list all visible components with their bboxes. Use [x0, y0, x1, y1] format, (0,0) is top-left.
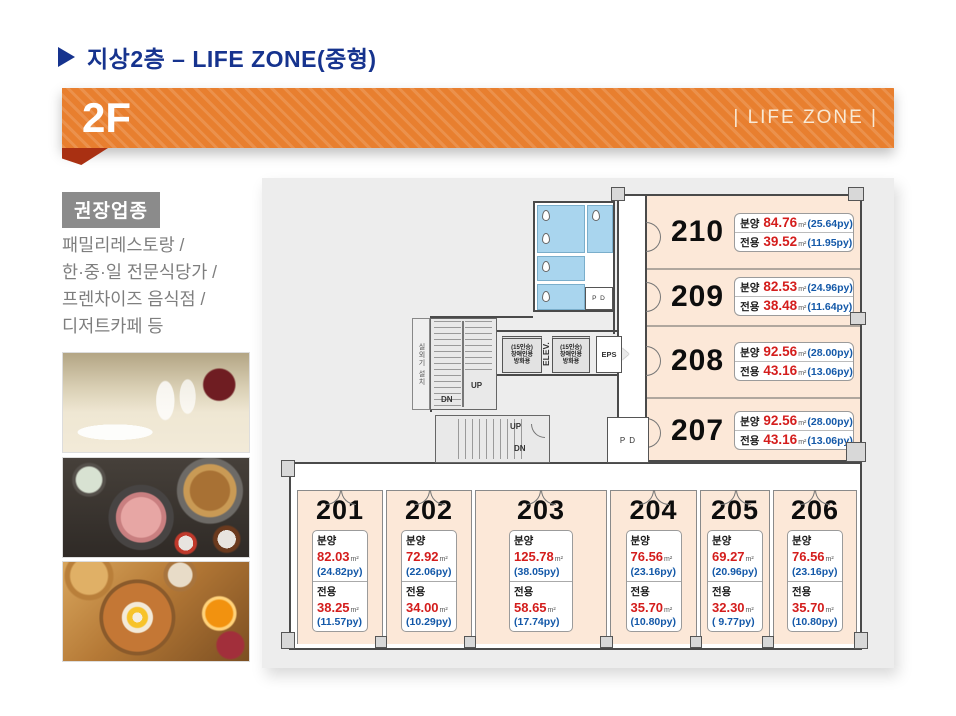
pd-shaft: P D: [585, 287, 613, 310]
dn-label: DN: [441, 395, 453, 404]
bunyang-value: 82.03: [317, 549, 350, 564]
bunyang-py: (23.16py): [631, 566, 677, 578]
bunyang-py: (22.06py): [406, 566, 452, 578]
sqm-unit: m²: [440, 556, 448, 563]
jeonyong-value: 34.00: [406, 600, 439, 615]
sqm-unit: m²: [746, 556, 754, 563]
photo-restaurant-table-setting: [62, 352, 250, 453]
bunyang-label: 분양: [740, 280, 759, 295]
door-icon: [721, 490, 751, 505]
pillar: [846, 442, 866, 462]
jeonyong-label: 전용: [712, 584, 758, 599]
eps-arrow-icon: [622, 348, 629, 360]
sqm-unit: m²: [798, 286, 806, 293]
jeonyong-value: 43.16: [763, 363, 797, 378]
bunyang-label: 분양: [406, 533, 452, 548]
bunyang-label: 분양: [740, 345, 759, 360]
pillar: [611, 187, 625, 201]
toilet-icon: [542, 233, 550, 244]
unit-area-card: 분양 69.27m² (20.96py) 전용 32.30m² ( 9.77py…: [707, 530, 763, 632]
pillar: [464, 636, 476, 648]
sqm-unit: m²: [826, 607, 834, 614]
page-title: 지상2층 – LIFE ZONE(중형): [87, 40, 377, 74]
bunyang-value: 76.56: [792, 549, 825, 564]
sqm-unit: m²: [440, 607, 448, 614]
elevator-accessible: 장애인용: [560, 352, 582, 359]
sqm-unit: m²: [798, 222, 806, 229]
jeonyong-label: 전용: [740, 364, 759, 379]
elevator-fire: 방화용: [514, 359, 531, 366]
jeonyong-value: 38.48: [763, 298, 797, 313]
unit-208: 208 분양92.56m²(28.00py) 전용43.16m²(13.06py…: [647, 325, 860, 397]
jeonyong-value: 38.25: [317, 600, 350, 615]
jeonyong-py: (17.74py): [514, 616, 568, 628]
sqm-unit: m²: [746, 607, 754, 614]
right-wing: 210 분양84.76m²(25.64py) 전용39.52m²(11.95py…: [617, 194, 862, 462]
unit-number: 208: [671, 344, 724, 378]
bunyang-value: 92.56: [763, 344, 797, 359]
recommend-item: 패밀리레스토랑 /: [62, 232, 217, 259]
restroom: [587, 205, 613, 253]
unit-area-card: 분양92.56m²(28.00py) 전용43.16m²(13.06py): [734, 342, 854, 381]
unit-206: 206 분양 76.56m² (23.16py) 전용 35.70m² (10.…: [773, 490, 857, 644]
toilet-icon: [592, 210, 600, 221]
bunyang-value: 92.56: [763, 413, 797, 428]
dn-label: DN: [514, 444, 526, 453]
restroom-block: P D: [533, 201, 615, 312]
elevator-accessible: 장애인용: [511, 352, 533, 359]
recommend-title-badge: 권장업종: [62, 192, 160, 228]
sqm-unit: m²: [548, 607, 556, 614]
recommend-item: 디저트카페 등: [62, 313, 217, 340]
wall: [497, 374, 617, 376]
jeonyong-py: (11.64py): [807, 301, 852, 313]
jeonyong-py: (10.80py): [792, 616, 838, 628]
sqm-unit: m²: [798, 439, 806, 446]
slide: 지상2층 – LIFE ZONE(중형) 2F | LIFE ZONE | 권장…: [0, 0, 956, 716]
page-title-row: 지상2층 – LIFE ZONE(중형): [58, 40, 377, 74]
elevator-fire: 방화용: [563, 359, 580, 366]
bunyang-py: (23.16py): [792, 566, 838, 578]
photo-korean-course-meal: [62, 457, 250, 558]
pillar: [690, 636, 702, 648]
jeonyong-label: 전용: [792, 584, 838, 599]
bunyang-py: (25.64py): [807, 218, 853, 230]
bunyang-label: 분양: [740, 414, 759, 429]
pillar: [854, 632, 868, 649]
jeonyong-value: 35.70: [631, 600, 664, 615]
unit-number: 207: [671, 414, 724, 448]
jeonyong-py: (11.95py): [807, 237, 852, 249]
bunyang-py: (24.96py): [807, 282, 853, 294]
unit-204: 204 분양 76.56m² (23.16py) 전용 35.70m² (10.…: [610, 490, 697, 644]
unit-number: 210: [671, 215, 724, 249]
jeonyong-label: 전용: [514, 584, 568, 599]
jeonyong-py: (10.29py): [406, 616, 452, 628]
pillar: [281, 632, 295, 649]
floor-label: 2F: [62, 97, 131, 139]
jeonyong-py: (13.06py): [807, 366, 853, 378]
staircase-lower: [435, 415, 550, 463]
unit-area-card: 분양 125.78m² (38.05py) 전용 58.65m² (17.74p…: [509, 530, 573, 632]
zone-label: | LIFE ZONE |: [733, 107, 894, 129]
elevator-capacity: (15인승): [560, 345, 582, 352]
wall: [497, 330, 617, 332]
bunyang-value: 69.27: [712, 549, 745, 564]
sqm-unit: m²: [826, 556, 834, 563]
bunyang-py: (38.05py): [514, 566, 568, 578]
elevator: (15인승) 장애인용 방화용: [552, 336, 590, 373]
sqm-unit: m²: [351, 556, 359, 563]
sqm-unit: m²: [798, 241, 806, 248]
bottom-wing: 201 분양 82.03m² (24.82py) 전용 38.25m² (11.…: [289, 462, 862, 650]
unit-area-card: 분양 72.92m² (22.06py) 전용 34.00m² (10.29py…: [401, 530, 457, 632]
bunyang-value: 72.92: [406, 549, 439, 564]
jeonyong-label: 전용: [406, 584, 452, 599]
unit-area-card: 분양 76.56m² (23.16py) 전용 35.70m² (10.80py…: [787, 530, 843, 632]
door-icon: [415, 490, 445, 505]
bunyang-value: 76.56: [631, 549, 664, 564]
bunyang-label: 분양: [631, 533, 677, 548]
unit-area-card: 분양92.56m²(28.00py) 전용43.16m²(13.06py): [734, 411, 854, 450]
bunyang-py: (20.96py): [712, 566, 758, 578]
photo-breakfast-plate: [62, 561, 250, 662]
recommend-item: 한·중·일 전문식당가 /: [62, 259, 217, 286]
floor-plan: 210 분양84.76m²(25.64py) 전용39.52m²(11.95py…: [262, 178, 894, 668]
play-triangle-icon: [58, 47, 75, 67]
bunyang-py: (28.00py): [807, 347, 853, 359]
sqm-unit: m²: [798, 351, 806, 358]
jeonyong-label: 전용: [317, 584, 363, 599]
up-label: UP: [510, 422, 521, 431]
unit-number: 209: [671, 280, 724, 314]
stair-treads: [465, 321, 492, 373]
floor-banner: 2F | LIFE ZONE |: [62, 88, 894, 148]
jeonyong-value: 35.70: [792, 600, 825, 615]
elevator: (15인승) 장애인용 방화용: [502, 336, 542, 373]
bunyang-label: 분양: [740, 216, 759, 231]
elevator-capacity: (15인승): [511, 345, 533, 352]
pillar: [281, 460, 295, 477]
unit-203: 203 분양 125.78m² (38.05py) 전용 58.65m² (17…: [475, 490, 607, 644]
bunyang-label: 분양: [317, 533, 363, 548]
door-icon: [326, 490, 356, 505]
jeonyong-label: 전용: [740, 299, 759, 314]
unit-area-card: 분양 82.03m² (24.82py) 전용 38.25m² (11.57py…: [312, 530, 368, 632]
jeonyong-label: 전용: [740, 433, 759, 448]
unit-area-card: 분양 76.56m² (23.16py) 전용 35.70m² (10.80py…: [626, 530, 682, 632]
jeonyong-value: 32.30: [712, 600, 745, 615]
outdoor-unit-area: 실외기 설치: [412, 318, 430, 410]
bunyang-value: 84.76: [763, 215, 797, 230]
sqm-unit: m²: [798, 370, 806, 377]
pillar: [850, 312, 866, 325]
jeonyong-py: (10.80py): [631, 616, 677, 628]
pillar: [375, 636, 387, 648]
unit-201: 201 분양 82.03m² (24.82py) 전용 38.25m² (11.…: [297, 490, 383, 644]
door-icon: [800, 490, 830, 505]
jeonyong-value: 43.16: [763, 432, 797, 447]
bunyang-value: 125.78: [514, 549, 554, 564]
right-wing-units: 210 분양84.76m²(25.64py) 전용39.52m²(11.95py…: [645, 196, 860, 460]
stair-rail: [462, 321, 464, 407]
bunyang-py: (24.82py): [317, 566, 363, 578]
bunyang-label: 분양: [792, 533, 838, 548]
recommend-list: 패밀리레스토랑 / 한·중·일 전문식당가 / 프렌차이즈 음식점 / 디저트카…: [62, 232, 217, 341]
unit-205: 205 분양 69.27m² (20.96py) 전용 32.30m² ( 9.…: [700, 490, 770, 644]
jeonyong-label: 전용: [740, 235, 759, 250]
elevator-label: ELEV.: [541, 335, 552, 373]
unit-202: 202 분양 72.92m² (22.06py) 전용 34.00m² (10.…: [386, 490, 472, 644]
unit-210: 210 분양84.76m²(25.64py) 전용39.52m²(11.95py…: [647, 196, 860, 268]
pillar: [848, 187, 864, 201]
door-icon: [526, 490, 556, 505]
recommend-item: 프렌차이즈 음식점 /: [62, 286, 217, 313]
sqm-unit: m²: [664, 556, 672, 563]
toilet-icon: [542, 291, 550, 302]
jeonyong-value: 39.52: [763, 234, 797, 249]
unit-207: 207 분양92.56m²(28.00py) 전용43.16m²(13.06py…: [647, 397, 860, 464]
up-label: UP: [471, 381, 482, 390]
jeonyong-py: ( 9.77py): [712, 616, 758, 628]
jeonyong-label: 전용: [631, 584, 677, 599]
bunyang-py: (28.00py): [807, 416, 853, 428]
bunyang-label: 분양: [712, 533, 758, 548]
unit-area-card: 분양84.76m²(25.64py) 전용39.52m²(11.95py): [734, 213, 854, 252]
sqm-unit: m²: [555, 556, 563, 563]
sqm-unit: m²: [664, 607, 672, 614]
door-icon: [639, 490, 669, 505]
door-arc-icon: [531, 424, 545, 438]
toilet-icon: [542, 210, 550, 221]
sqm-unit: m²: [351, 607, 359, 614]
pillar: [600, 636, 613, 648]
unit-area-card: 분양82.53m²(24.96py) 전용38.48m²(11.64py): [734, 277, 854, 316]
bunyang-value: 82.53: [763, 279, 797, 294]
sqm-unit: m²: [798, 420, 806, 427]
toilet-icon: [542, 261, 550, 272]
unit-209: 209 분양82.53m²(24.96py) 전용38.48m²(11.64py…: [647, 268, 860, 325]
bunyang-label: 분양: [514, 533, 568, 548]
pd-shaft: P D: [607, 417, 649, 463]
eps-shaft: EPS: [596, 336, 622, 373]
ribbon-fold: [62, 148, 108, 165]
pillar: [762, 636, 774, 648]
sqm-unit: m²: [798, 305, 806, 312]
jeonyong-py: (11.57py): [317, 616, 363, 628]
wall: [613, 312, 615, 334]
jeonyong-value: 58.65: [514, 600, 547, 615]
